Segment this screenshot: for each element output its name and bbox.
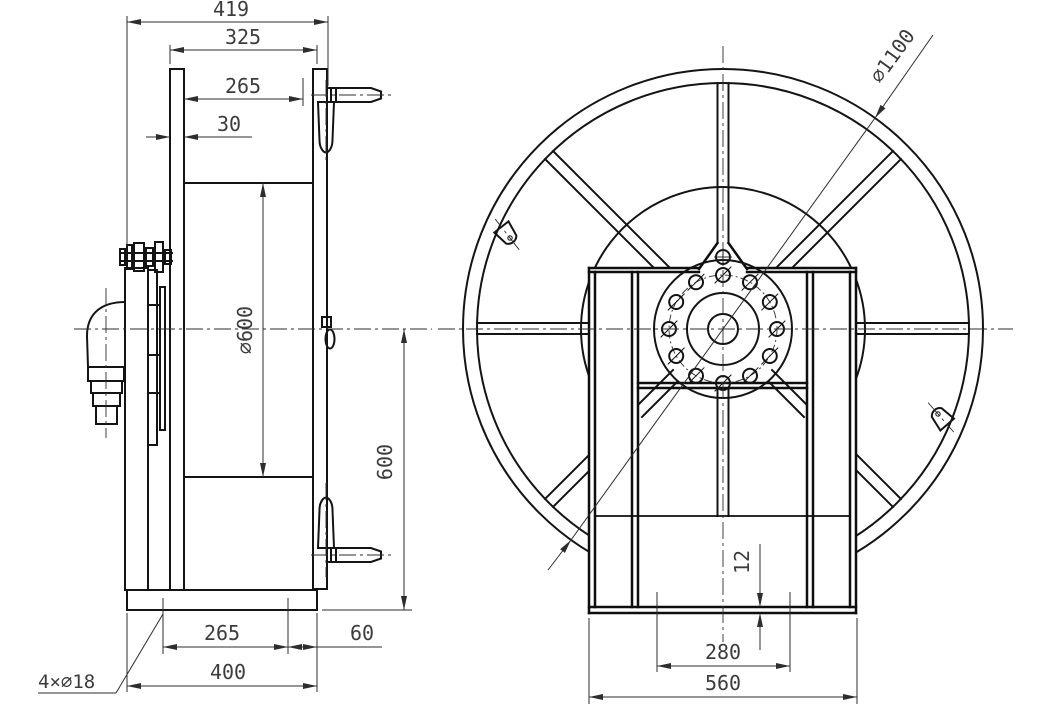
side-view: 419 325 265 30 ∅600 600 265 60 400 4×∅18	[38, 0, 432, 693]
hose-fitting-band	[91, 381, 122, 393]
handle-cutout-lower-right	[921, 397, 960, 438]
dim-label-30: 30	[217, 112, 241, 136]
dim-label-flange-diameter: ∅1100	[865, 24, 920, 87]
dim-label-280: 280	[705, 640, 741, 664]
handle-cutout-upper-left	[488, 214, 526, 256]
dim-label-60: 60	[350, 621, 374, 645]
dim-label-12: 12	[730, 550, 754, 574]
bearing-plate	[148, 270, 157, 445]
hub-gusset	[699, 243, 718, 269]
dim-label-265-top: 265	[225, 74, 261, 98]
left-flange-plate	[170, 69, 184, 590]
dim-label-560: 560	[705, 671, 741, 695]
front-view: ∅1100 12 280 560	[438, 24, 1013, 704]
technical-drawing-page: 419 325 265 30 ∅600 600 265 60 400 4×∅18	[0, 0, 1054, 712]
dim-label-drum-diameter: ∅600	[233, 306, 257, 354]
hose-fitting-band	[93, 393, 120, 406]
frame-cover	[589, 268, 856, 613]
hub-plate	[160, 287, 165, 430]
cable-reel-drawing: 419 325 265 30 ∅600 600 265 60 400 4×∅18	[0, 0, 1054, 712]
dim-label-400: 400	[210, 660, 246, 684]
callout-mounting-holes: 4×∅18	[38, 671, 95, 693]
hose-fitting-band	[96, 406, 117, 424]
dim-label-325: 325	[225, 25, 261, 49]
flange-latch	[322, 317, 335, 349]
bearing-column	[125, 268, 148, 590]
dim-label-265-bottom: 265	[204, 621, 240, 645]
dim-label-419: 419	[213, 0, 249, 21]
dim-label-600: 600	[373, 444, 397, 480]
